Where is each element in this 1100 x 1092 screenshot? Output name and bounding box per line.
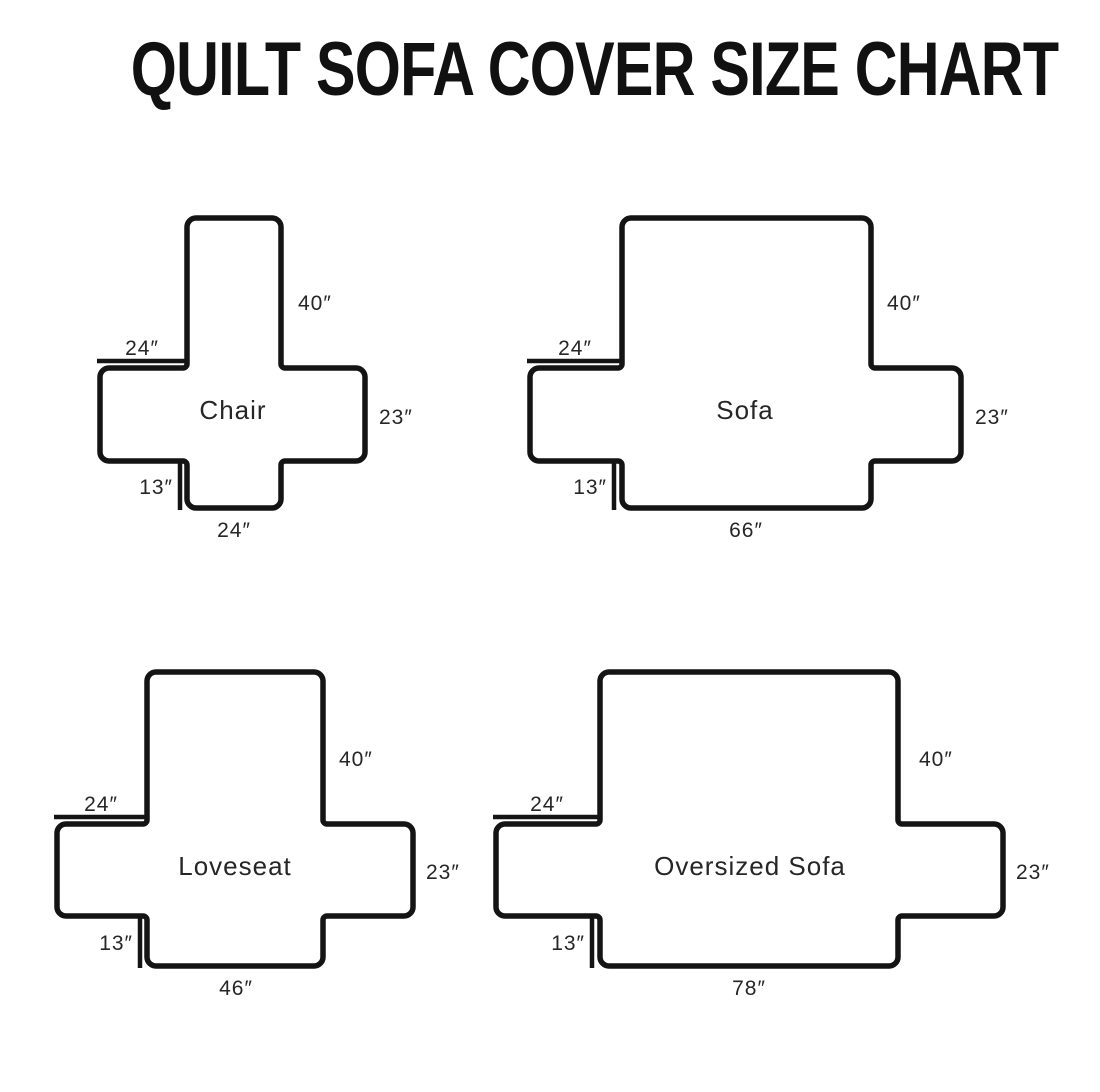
- chair-seat-width-label: 24″: [217, 519, 251, 542]
- chair-back-height-label: 40″: [298, 292, 332, 315]
- loveseat-seat-width-label: 46″: [219, 977, 253, 1000]
- loveseat-back-height-label: 40″: [339, 748, 373, 771]
- size-chart-page: QUILT SOFA COVER SIZE CHART 40″ 24″ 23″ …: [0, 0, 1100, 1092]
- chair-name-label: Chair: [199, 395, 266, 425]
- chair-side-height-label: 23″: [379, 406, 413, 429]
- sofa-name-label: Sofa: [716, 395, 774, 425]
- oversized-sofa-diagram: 40″ 24″ 23″ 13″ 78″ Oversized Sofa: [493, 672, 1050, 1000]
- diagrams-canvas: 40″ 24″ 23″ 13″ 24″ Chair 40″ 24″ 23″ 13…: [0, 0, 1100, 1092]
- sofa-side-height-label: 23″: [975, 406, 1009, 429]
- oversized-sofa-flap-height-label: 13″: [551, 932, 585, 955]
- oversized-sofa-seat-width-label: 78″: [732, 977, 766, 1000]
- oversized-sofa-back-height-label: 40″: [919, 748, 953, 771]
- sofa-seat-width-label: 66″: [729, 519, 763, 542]
- loveseat-name-label: Loveseat: [178, 851, 292, 881]
- sofa-back-height-label: 40″: [887, 292, 921, 315]
- sofa-flap-height-label: 13″: [573, 476, 607, 499]
- loveseat-arm-width-label: 24″: [84, 793, 118, 816]
- sofa-arm-width-label: 24″: [558, 337, 592, 360]
- chair-flap-height-label: 13″: [139, 476, 173, 499]
- sofa-diagram: 40″ 24″ 23″ 13″ 66″ Sofa: [527, 218, 1009, 542]
- oversized-sofa-arm-width-label: 24″: [530, 793, 564, 816]
- loveseat-side-height-label: 23″: [426, 861, 460, 884]
- chair-arm-width-label: 24″: [125, 337, 159, 360]
- loveseat-flap-height-label: 13″: [99, 932, 133, 955]
- oversized-sofa-side-height-label: 23″: [1016, 861, 1050, 884]
- chair-diagram: 40″ 24″ 23″ 13″ 24″ Chair: [97, 218, 413, 542]
- loveseat-diagram: 40″ 24″ 23″ 13″ 46″ Loveseat: [54, 672, 460, 1000]
- oversized-sofa-name-label: Oversized Sofa: [654, 851, 846, 881]
